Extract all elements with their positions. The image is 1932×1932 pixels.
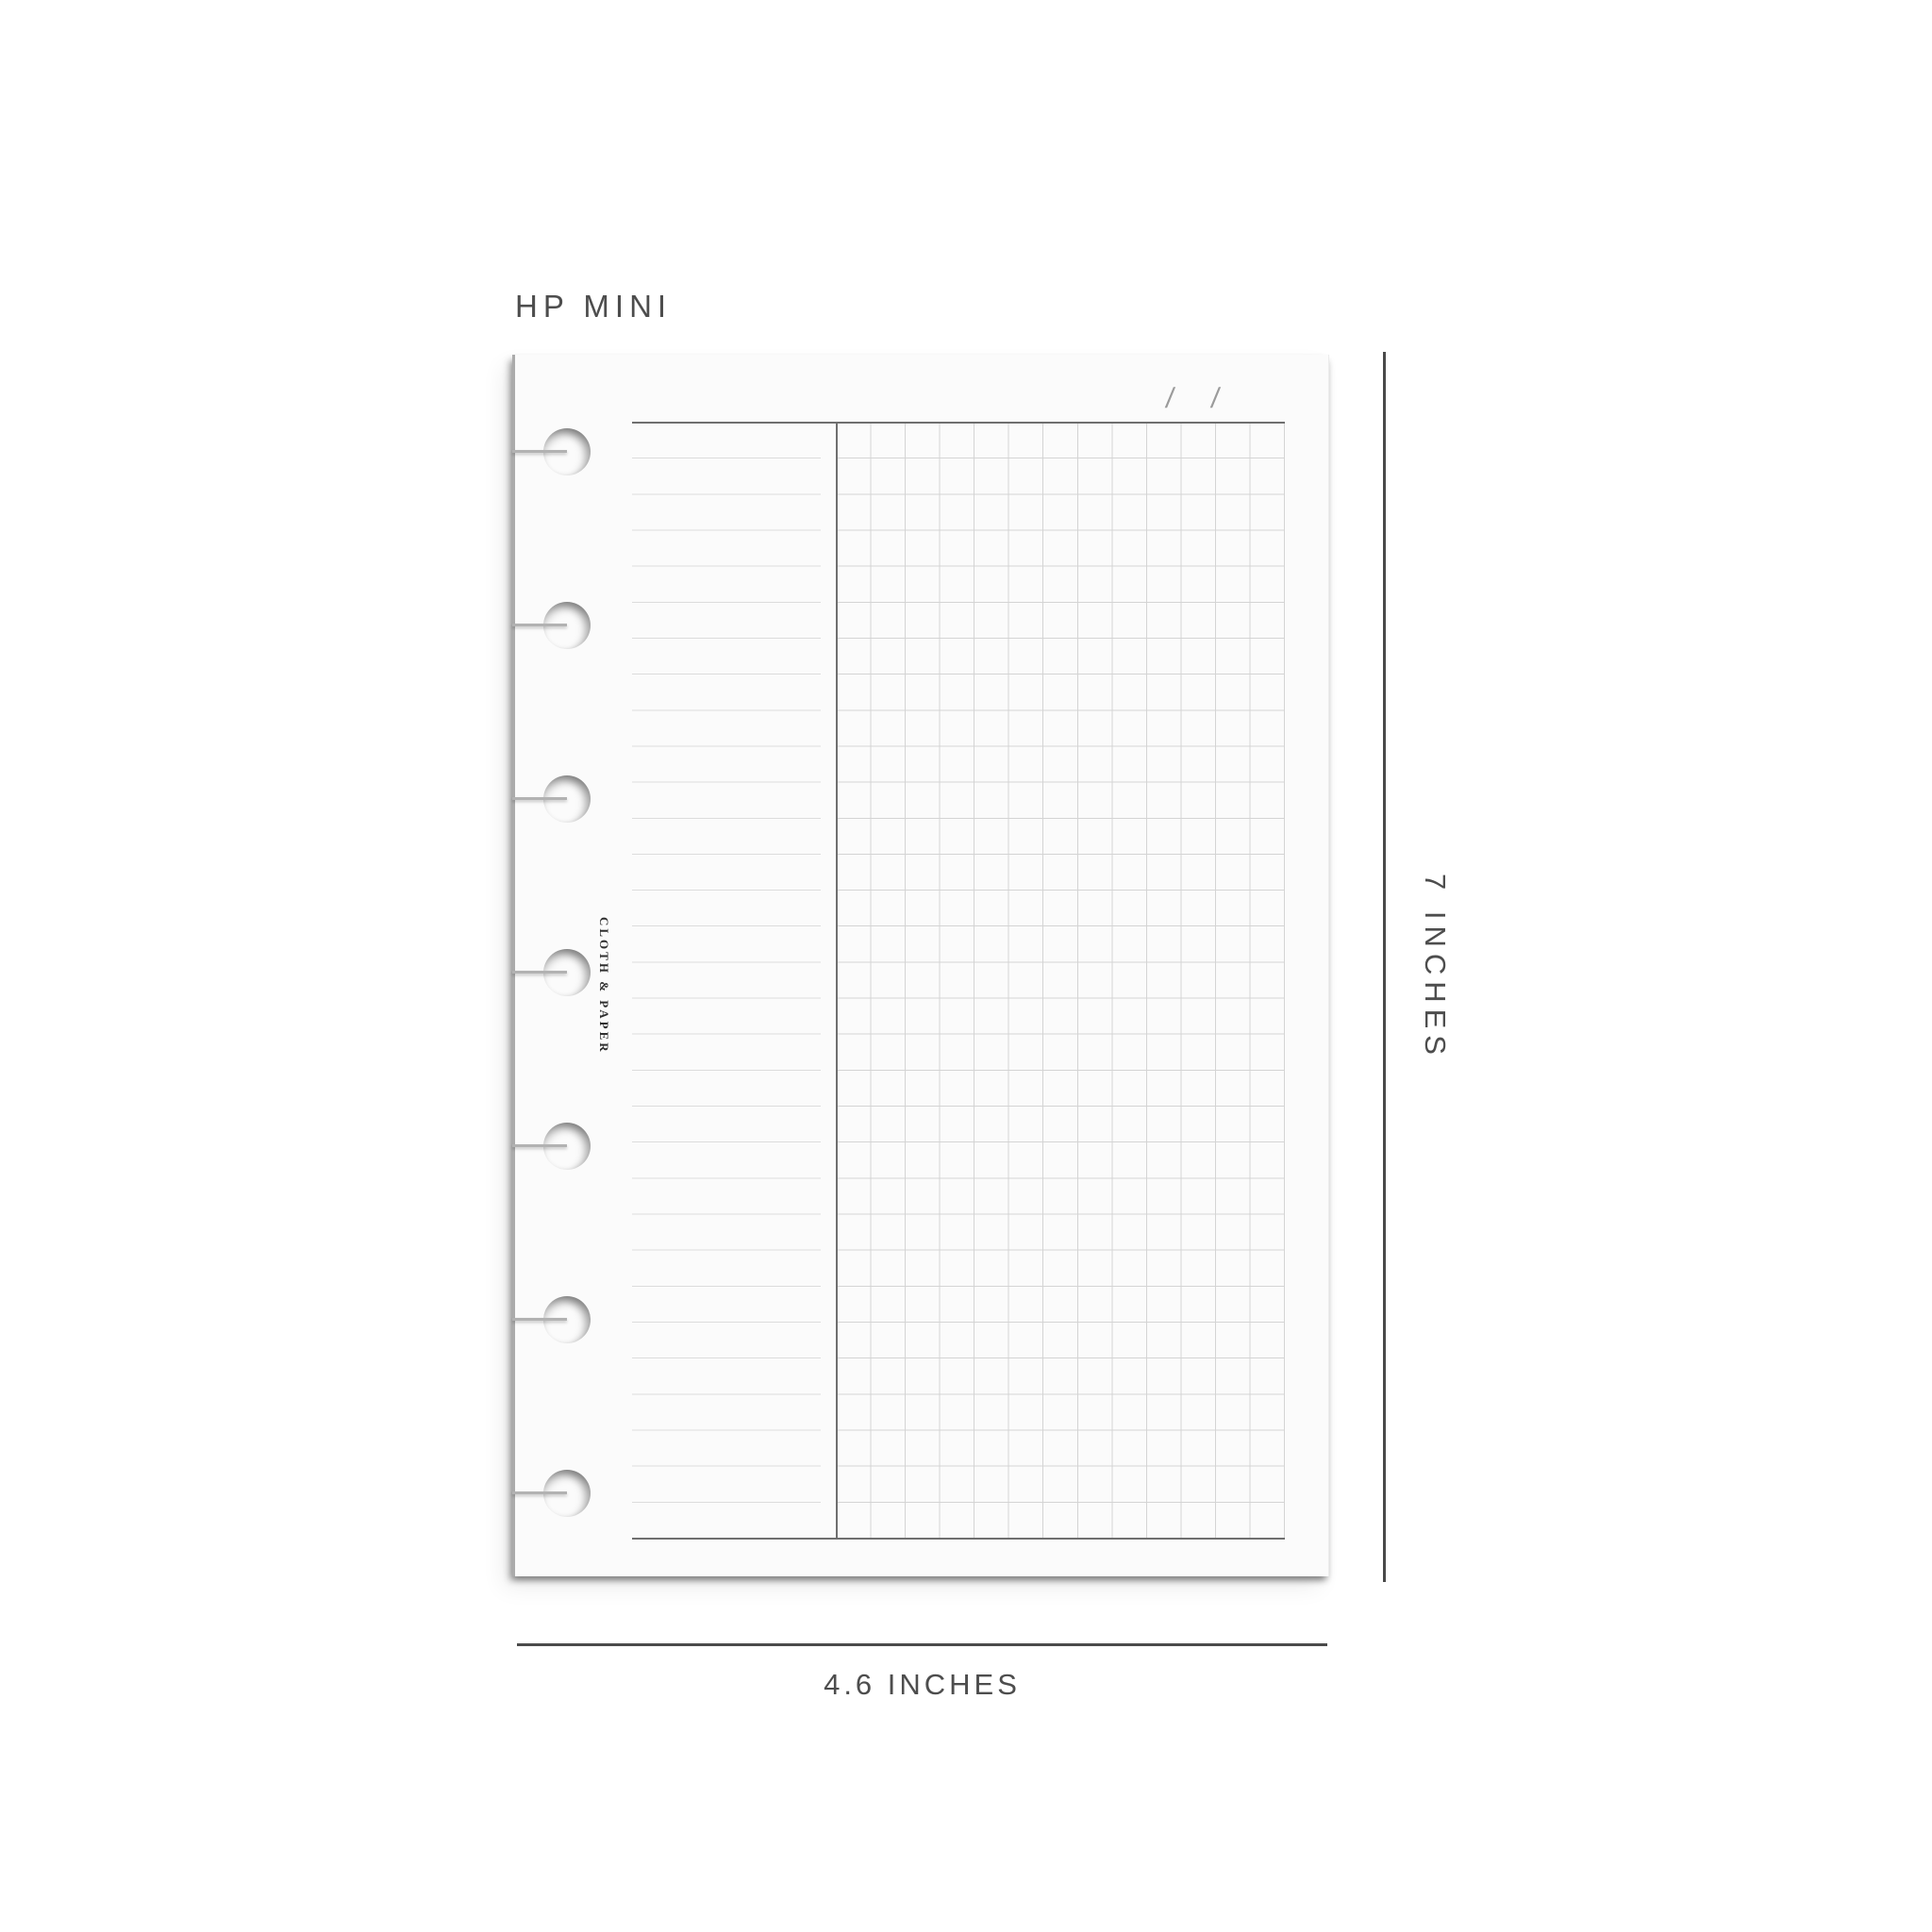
grid-panel — [837, 423, 1285, 1539]
punch-disc-cutout — [543, 1123, 591, 1170]
date-slash: / — [1164, 383, 1176, 415]
punch-disc-cutout — [543, 949, 591, 996]
punch-disc-cutout — [543, 775, 591, 823]
disc-punch-hole — [515, 1118, 600, 1174]
brand-text: CLOTH & PAPER — [596, 917, 611, 1023]
width-dimension-label: 4.6 INCHES — [517, 1668, 1327, 1702]
punch-disc-cutout — [543, 1296, 591, 1343]
width-dimension-line — [517, 1643, 1327, 1646]
date-slash: / — [1209, 383, 1222, 415]
height-dimension-label: 7 INCHES — [1413, 352, 1457, 1582]
height-dimension-line — [1383, 352, 1386, 1582]
punch-slit — [512, 1318, 567, 1321]
date-field: / / — [1166, 383, 1270, 421]
punch-slit — [512, 450, 567, 453]
disc-punch-hole — [515, 1291, 600, 1348]
disc-punch-hole — [515, 424, 600, 480]
ruled-lines-panel — [632, 423, 821, 1539]
planner-page: CLOTH & PAPER / / — [512, 355, 1329, 1576]
disc-punch-hole — [515, 1465, 600, 1522]
disc-punch-hole — [515, 597, 600, 654]
disc-punch-hole — [515, 944, 600, 1001]
top-rule-line — [632, 422, 1285, 424]
punch-slit — [512, 797, 567, 800]
product-mockup-stage: HP MINI CLOTH & PAPER — [0, 0, 1932, 1932]
punch-slit — [512, 971, 567, 974]
punch-disc-cutout — [543, 602, 591, 649]
punch-slit — [512, 624, 567, 626]
punch-slit — [512, 1491, 567, 1494]
bottom-rule-line — [632, 1538, 1285, 1540]
size-label: HP MINI — [515, 289, 672, 325]
column-divider-line — [836, 422, 838, 1540]
punch-disc-cutout — [543, 428, 591, 475]
punch-slit — [512, 1144, 567, 1147]
punch-disc-cutout — [543, 1470, 591, 1517]
disc-punch-hole — [515, 771, 600, 827]
